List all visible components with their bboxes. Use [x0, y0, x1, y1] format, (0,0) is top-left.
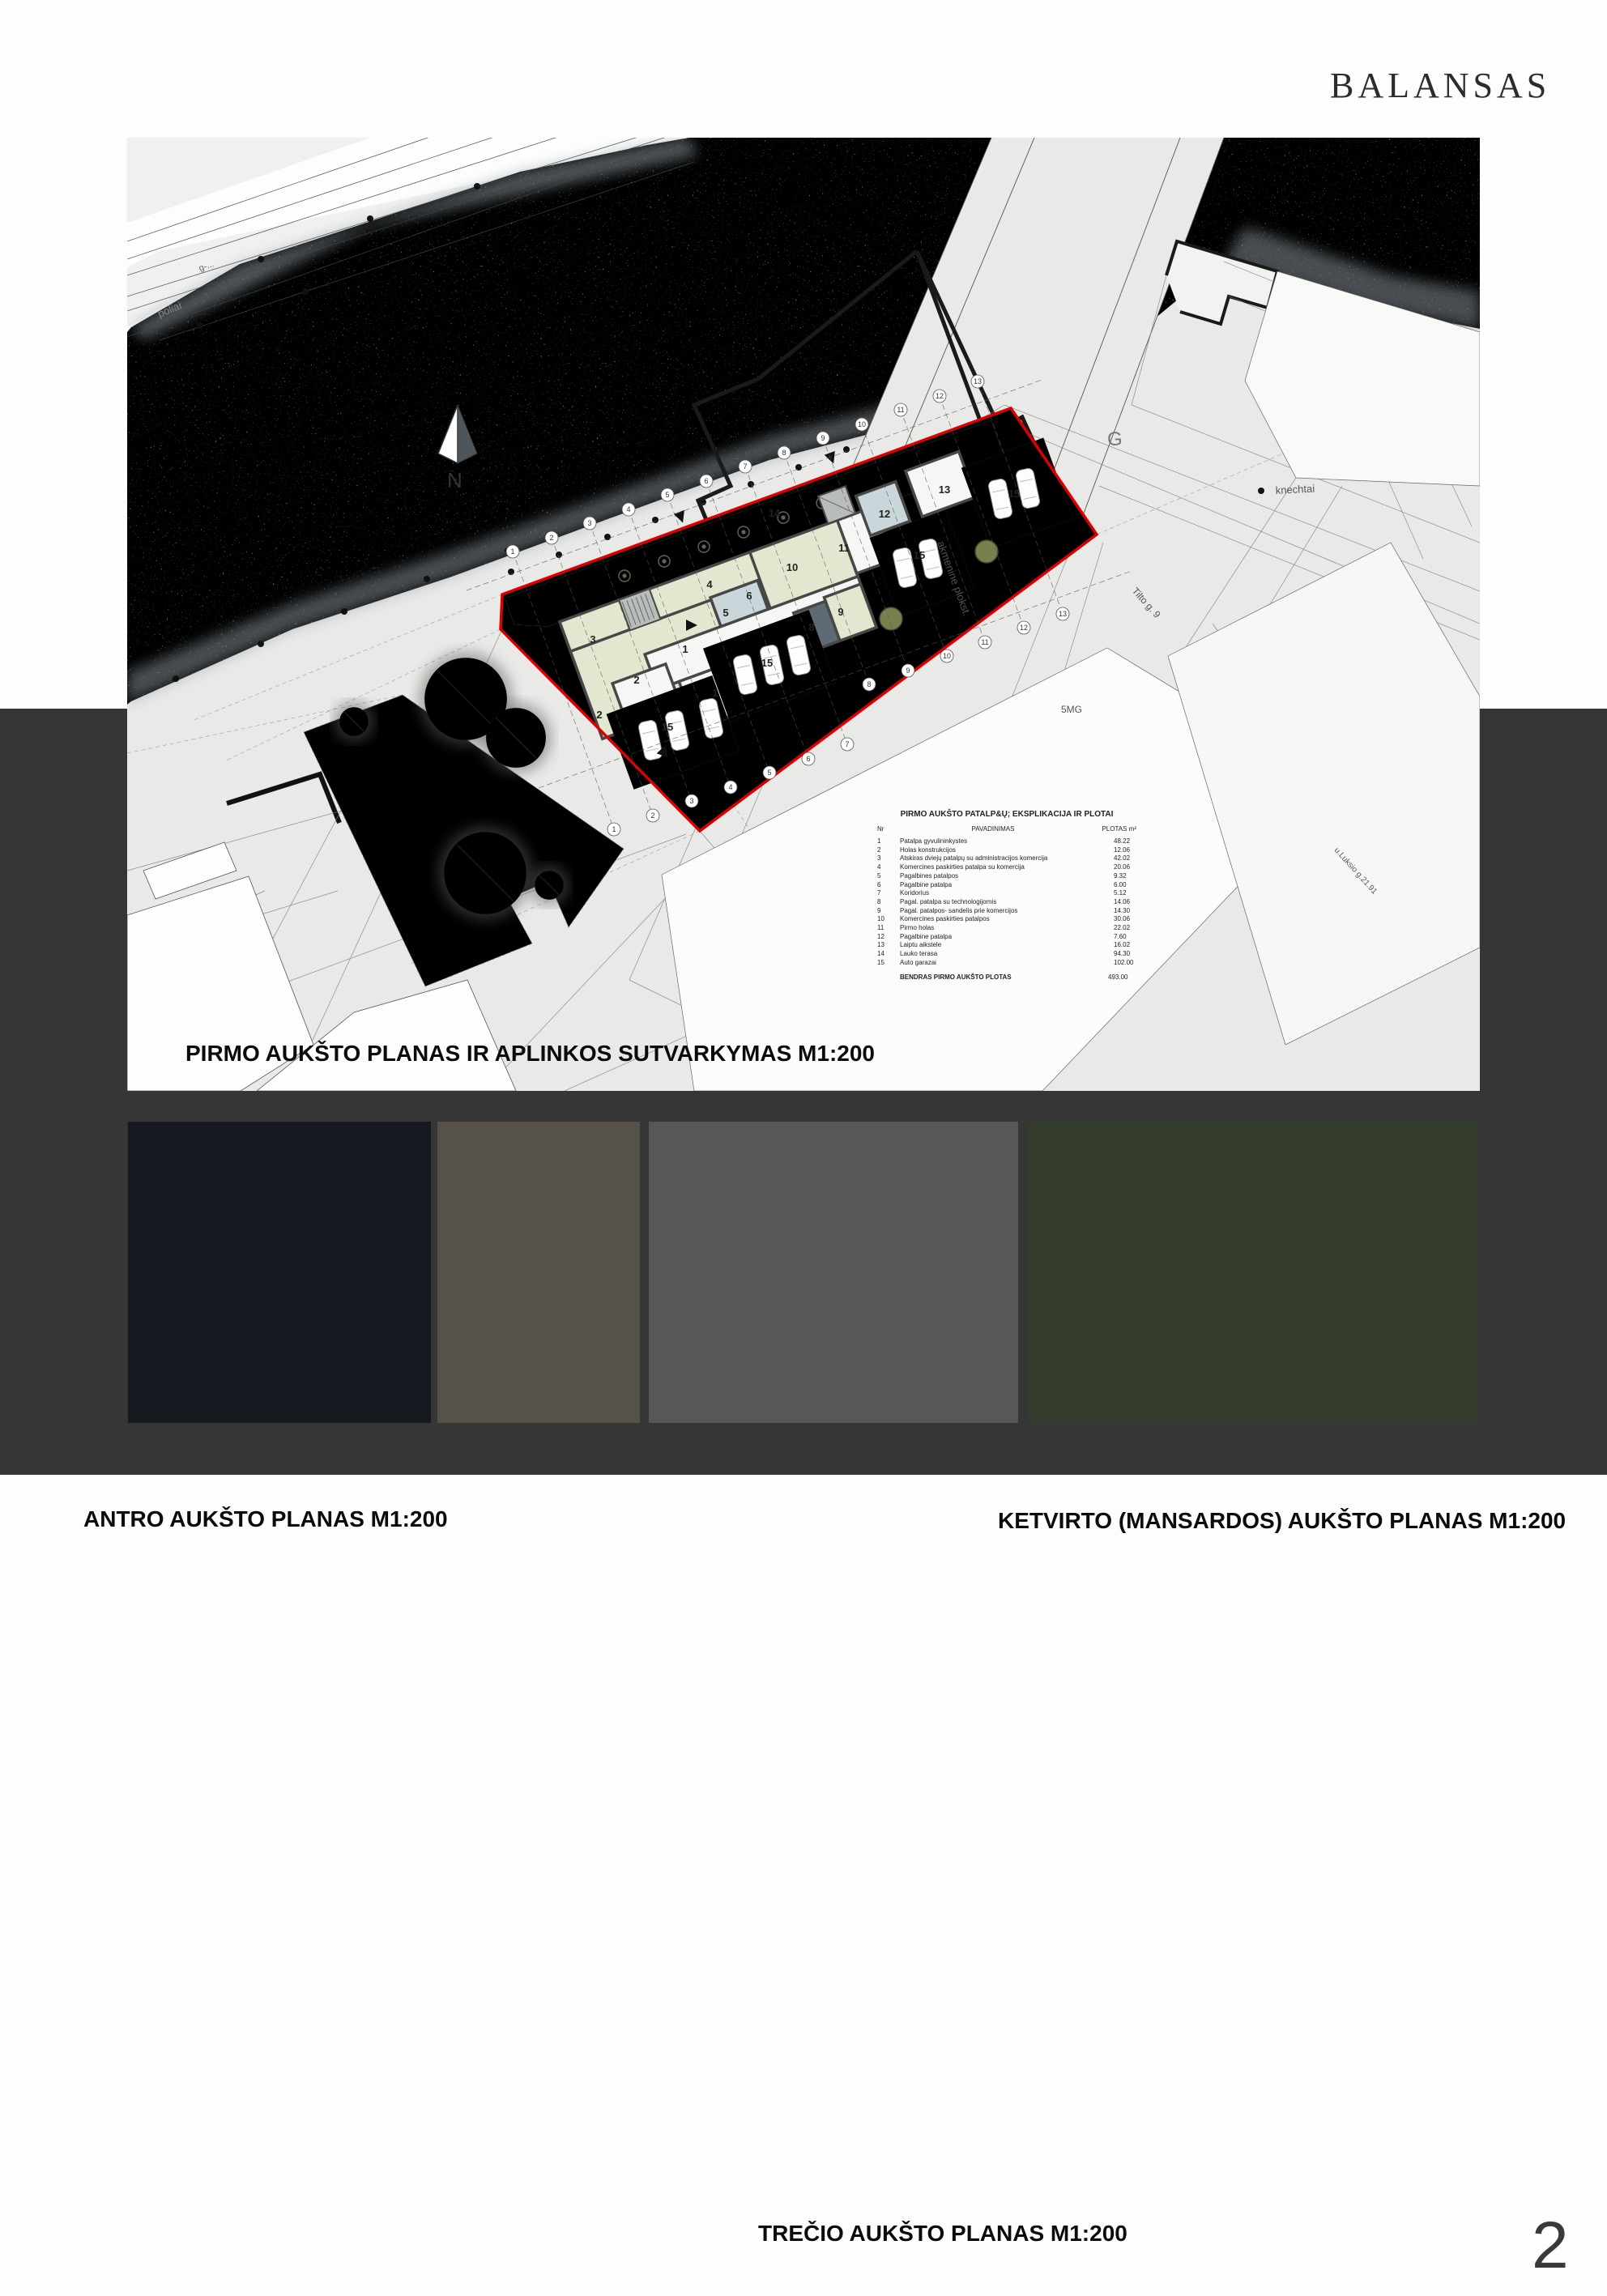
svg-text:12: 12: [936, 392, 944, 400]
svg-text:13: 13: [939, 483, 950, 496]
svg-text:11: 11: [838, 542, 850, 554]
svg-text:8: 8: [867, 680, 871, 688]
svg-text:15: 15: [1008, 488, 1020, 500]
svg-text:2: 2: [650, 811, 654, 820]
svg-text:10: 10: [786, 561, 798, 573]
svg-text:knechtai: knechtai: [1275, 482, 1315, 496]
svg-text:15: 15: [761, 657, 773, 669]
svg-text:8: 8: [808, 621, 814, 633]
svg-text:4: 4: [626, 505, 630, 513]
svg-text:7: 7: [743, 462, 747, 471]
svg-text:12: 12: [879, 508, 890, 520]
svg-text:6: 6: [704, 477, 708, 485]
svg-text:13: 13: [1059, 610, 1067, 618]
svg-text:1: 1: [712, 687, 718, 699]
svg-text:9: 9: [906, 667, 910, 675]
svg-text:2: 2: [633, 674, 639, 686]
svg-text:8: 8: [782, 449, 786, 457]
svg-text:13: 13: [974, 377, 982, 386]
svg-text:5MG: 5MG: [1061, 704, 1082, 715]
svg-text:3: 3: [689, 797, 693, 805]
svg-text:6: 6: [806, 755, 810, 763]
svg-text:1: 1: [510, 547, 514, 556]
svg-text:12: 12: [1020, 624, 1028, 632]
svg-text:G: G: [1107, 428, 1123, 450]
svg-text:15: 15: [662, 721, 673, 733]
svg-text:4: 4: [706, 578, 713, 590]
svg-text:7: 7: [845, 740, 849, 748]
svg-text:5: 5: [767, 769, 771, 777]
svg-text:1: 1: [682, 643, 688, 655]
svg-text:3: 3: [587, 519, 591, 527]
svg-text:10: 10: [858, 420, 866, 428]
svg-text:11: 11: [897, 406, 904, 414]
svg-text:9: 9: [821, 434, 825, 442]
svg-text:5: 5: [665, 491, 669, 499]
svg-text:4: 4: [728, 783, 732, 791]
svg-text:5: 5: [723, 607, 728, 619]
svg-text:2: 2: [549, 534, 553, 542]
svg-text:14: 14: [769, 507, 781, 519]
svg-text:1: 1: [612, 825, 616, 833]
svg-text:3: 3: [590, 633, 595, 645]
svg-text:PIRMO AUKŠTO PLANAS IR APLINKO: PIRMO AUKŠTO PLANAS IR APLINKOS SUTVARKY…: [185, 1040, 875, 1066]
svg-text:N: N: [447, 468, 462, 492]
svg-text:11: 11: [981, 638, 988, 646]
svg-text:6: 6: [746, 590, 752, 602]
svg-text:2: 2: [596, 709, 602, 721]
svg-text:15: 15: [914, 549, 925, 561]
svg-text:10: 10: [943, 652, 951, 660]
